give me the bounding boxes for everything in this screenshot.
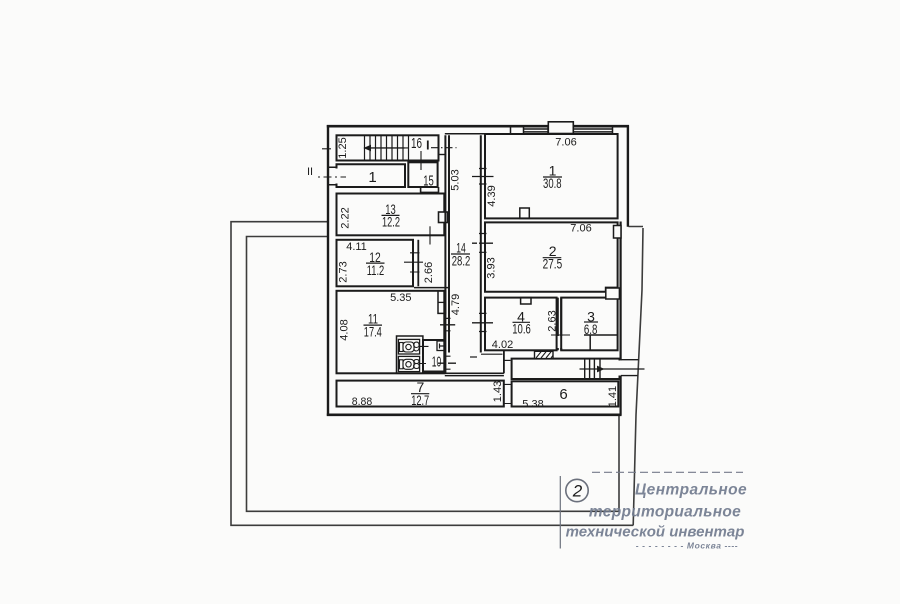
svg-text:12.7: 12.7 <box>411 392 429 408</box>
svg-text:4.02: 4.02 <box>492 339 513 351</box>
svg-text:2.73: 2.73 <box>338 261 350 282</box>
svg-text:II: II <box>307 166 313 178</box>
svg-text:28.2: 28.2 <box>452 252 471 268</box>
svg-text:6.8: 6.8 <box>584 321 598 337</box>
svg-text:‐ ‐ ‐ ‐ ‐ ‐ ‐ ‐ Москва ‐‐‐‐: ‐ ‐ ‐ ‐ ‐ ‐ ‐ ‐ Москва ‐‐‐‐ <box>636 541 738 551</box>
svg-text:4.39: 4.39 <box>486 185 498 206</box>
svg-text:3.93: 3.93 <box>486 257 498 278</box>
svg-text:15: 15 <box>423 173 434 190</box>
svg-text:9: 9 <box>412 339 420 356</box>
svg-text:2.63: 2.63 <box>547 310 559 331</box>
svg-text:4.79: 4.79 <box>450 294 462 315</box>
svg-text:2: 2 <box>572 482 583 501</box>
svg-text:4.11: 4.11 <box>346 241 367 253</box>
svg-text:1.41: 1.41 <box>607 386 619 407</box>
svg-text:8: 8 <box>412 356 420 373</box>
svg-text:технической инвентар: технической инвентар <box>566 524 745 541</box>
svg-text:5.03: 5.03 <box>450 169 462 190</box>
svg-text:1.43: 1.43 <box>492 381 504 402</box>
svg-text:11.2: 11.2 <box>367 262 385 278</box>
svg-text:7.06: 7.06 <box>570 223 591 235</box>
svg-text:30.8: 30.8 <box>543 175 562 191</box>
svg-text:территориальное: территориальное <box>589 504 741 521</box>
svg-text:1.25: 1.25 <box>337 137 349 158</box>
svg-text:Центральное: Центральное <box>635 482 747 499</box>
svg-text:4.08: 4.08 <box>339 319 351 340</box>
svg-text:2.66: 2.66 <box>423 262 435 283</box>
svg-text:16: 16 <box>411 135 422 152</box>
svg-text:2.22: 2.22 <box>340 207 352 228</box>
svg-text:1: 1 <box>368 169 376 186</box>
svg-text:6: 6 <box>559 386 567 403</box>
svg-text:17.4: 17.4 <box>364 324 382 340</box>
svg-text:10: 10 <box>432 354 442 371</box>
svg-text:5.38: 5.38 <box>522 399 543 411</box>
svg-text:27.5: 27.5 <box>543 255 563 271</box>
svg-text:7.06: 7.06 <box>555 137 576 149</box>
svg-text:12.2: 12.2 <box>382 214 400 230</box>
svg-text:5.35: 5.35 <box>390 292 411 304</box>
svg-text:10.6: 10.6 <box>512 320 531 336</box>
svg-text:8.88: 8.88 <box>352 396 373 408</box>
